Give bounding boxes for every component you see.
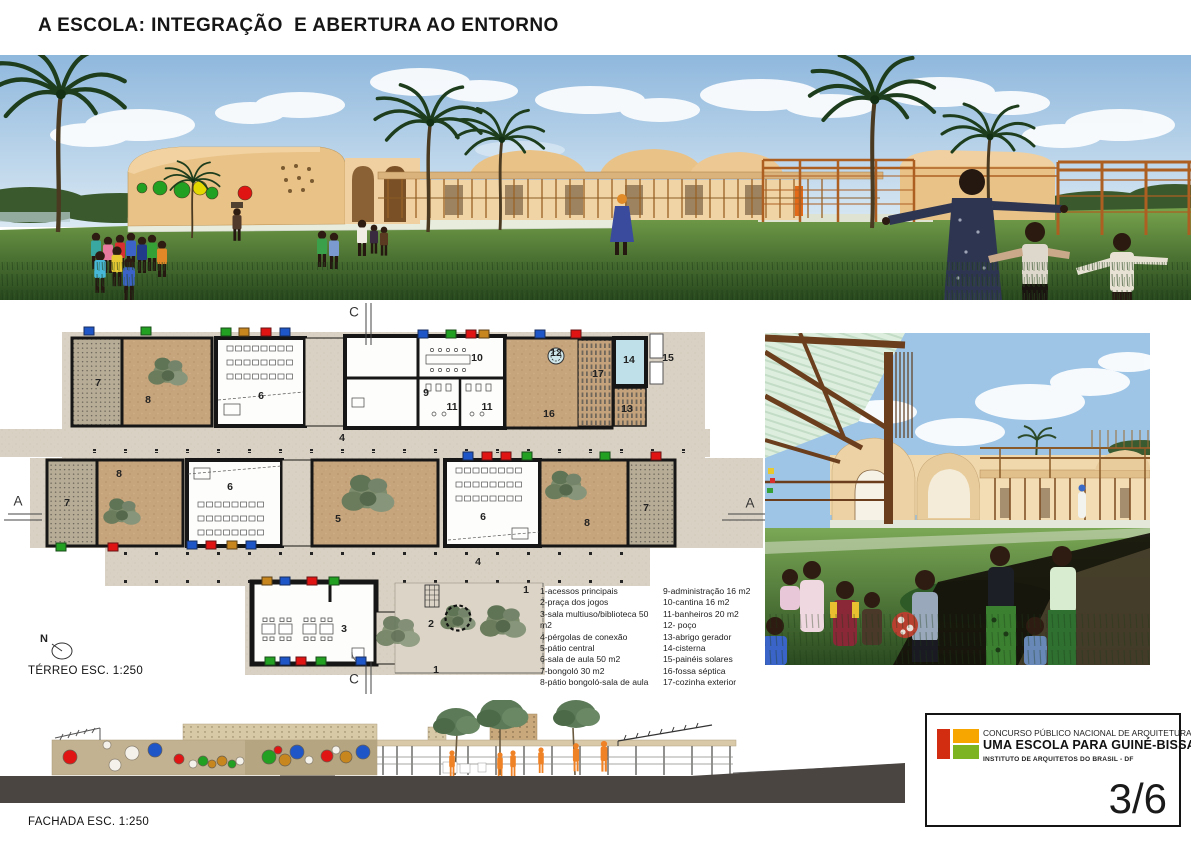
legend-item: 5-pátio central bbox=[540, 643, 653, 654]
legend-item: 9-administração 16 m2 bbox=[663, 586, 776, 597]
logo-orange-square bbox=[953, 729, 979, 743]
logo-green-square bbox=[953, 745, 979, 759]
vaulted-building bbox=[128, 147, 420, 226]
legend-item: 12- poço bbox=[663, 620, 776, 631]
legend-item: 14-cisterna bbox=[663, 643, 776, 654]
iab-logo bbox=[937, 729, 989, 759]
well-circle bbox=[548, 348, 564, 364]
north-label: N bbox=[40, 633, 48, 645]
pergola-columns-row bbox=[70, 449, 700, 453]
legend-item: 11-banheiros 20 m2 bbox=[663, 609, 776, 620]
room-legend: 1-acessos principais2-praça dos jogos3-s… bbox=[540, 586, 776, 689]
legend-col2: 9-administração 16 m210-cantina 16 m211-… bbox=[663, 586, 776, 689]
facade-scale-label: FACHADA ESC. 1:250 bbox=[28, 816, 149, 828]
north-arrow bbox=[52, 643, 72, 659]
legend-col1: 1-acessos principais2-praça dos jogos3-s… bbox=[540, 586, 653, 689]
competition-name: CONCURSO PÚBLICO NACIONAL DE ARQUITETURA bbox=[983, 728, 1191, 738]
page-title: A ESCOLA: INTEGRAÇÃO E ABERTURA AO ENTOR… bbox=[38, 15, 559, 37]
sheet-number: 3/6 bbox=[1109, 775, 1167, 823]
competition-board: A ESCOLA: INTEGRAÇÃO E ABERTURA AO ENTOR… bbox=[0, 0, 1191, 842]
courtyard-photo bbox=[765, 333, 1150, 665]
institute-name: INSTITUTO DE ARQUITETOS DO BRASIL - DF bbox=[983, 756, 1134, 763]
legend-item: 16-fossa séptica bbox=[663, 666, 776, 677]
legend-item: 7-bongoló 30 m2 bbox=[540, 666, 653, 677]
facade-elevation bbox=[0, 700, 910, 812]
legend-item: 8-pátio bongoló-sala de aula bbox=[540, 677, 653, 688]
legend-item: 17-cozinha exterior bbox=[663, 677, 776, 688]
legend-item: 2-praça dos jogos bbox=[540, 597, 653, 608]
legend-item: 4-pérgolas de conexão bbox=[540, 632, 653, 643]
panorama-rendering bbox=[0, 55, 1191, 300]
legend-item: 15-painéis solares bbox=[663, 654, 776, 665]
title-block: CONCURSO PÚBLICO NACIONAL DE ARQUITETURA… bbox=[925, 713, 1181, 827]
legend-item: 13-abrigo gerador bbox=[663, 632, 776, 643]
logo-red-bar bbox=[937, 729, 950, 759]
legend-item: 1-acessos principais bbox=[540, 586, 653, 597]
project-name: UMA ESCOLA PARA GUINÉ-BISSAU bbox=[983, 738, 1191, 752]
legend-item: 3-sala multiuso/biblioteca 50 m2 bbox=[540, 609, 653, 632]
legend-item: 6-sala de aula 50 m2 bbox=[540, 654, 653, 665]
legend-item: 10-cantina 16 m2 bbox=[663, 597, 776, 608]
stair-rail bbox=[55, 728, 100, 740]
facade-columns bbox=[383, 746, 730, 775]
plan-scale-label: TÉRREO ESC. 1:250 bbox=[28, 665, 143, 677]
